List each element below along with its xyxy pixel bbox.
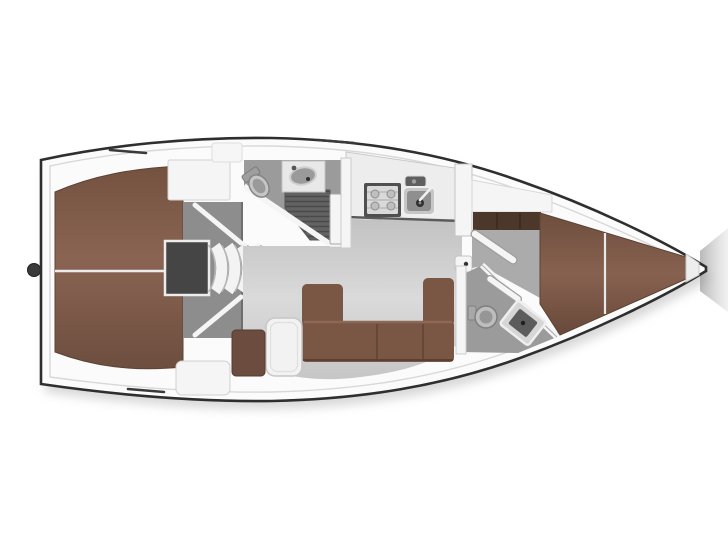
forward-head-left-wall [456,266,466,354]
aft-basin [282,161,325,192]
yacht-floor-plan [0,0,728,546]
bulkhead-upper [455,164,472,236]
galley-locker [405,176,426,187]
aft-cabinet [168,160,230,200]
engine-hatch [165,241,209,295]
yacht-floor-plan-canvas [0,0,728,546]
wardrobe [473,212,541,230]
settee-left-backrest [302,284,343,326]
aft-head-door [330,194,341,244]
companionway-hatch-tab [212,143,242,162]
settee-right-backrest [423,278,454,326]
galley-sink [403,187,435,215]
stove [364,183,401,217]
cockpit-locker [176,361,230,395]
settee-bench [302,321,454,362]
aft-head-wall [341,158,351,248]
transom-fitting [28,264,41,277]
salon-stool [232,330,265,376]
